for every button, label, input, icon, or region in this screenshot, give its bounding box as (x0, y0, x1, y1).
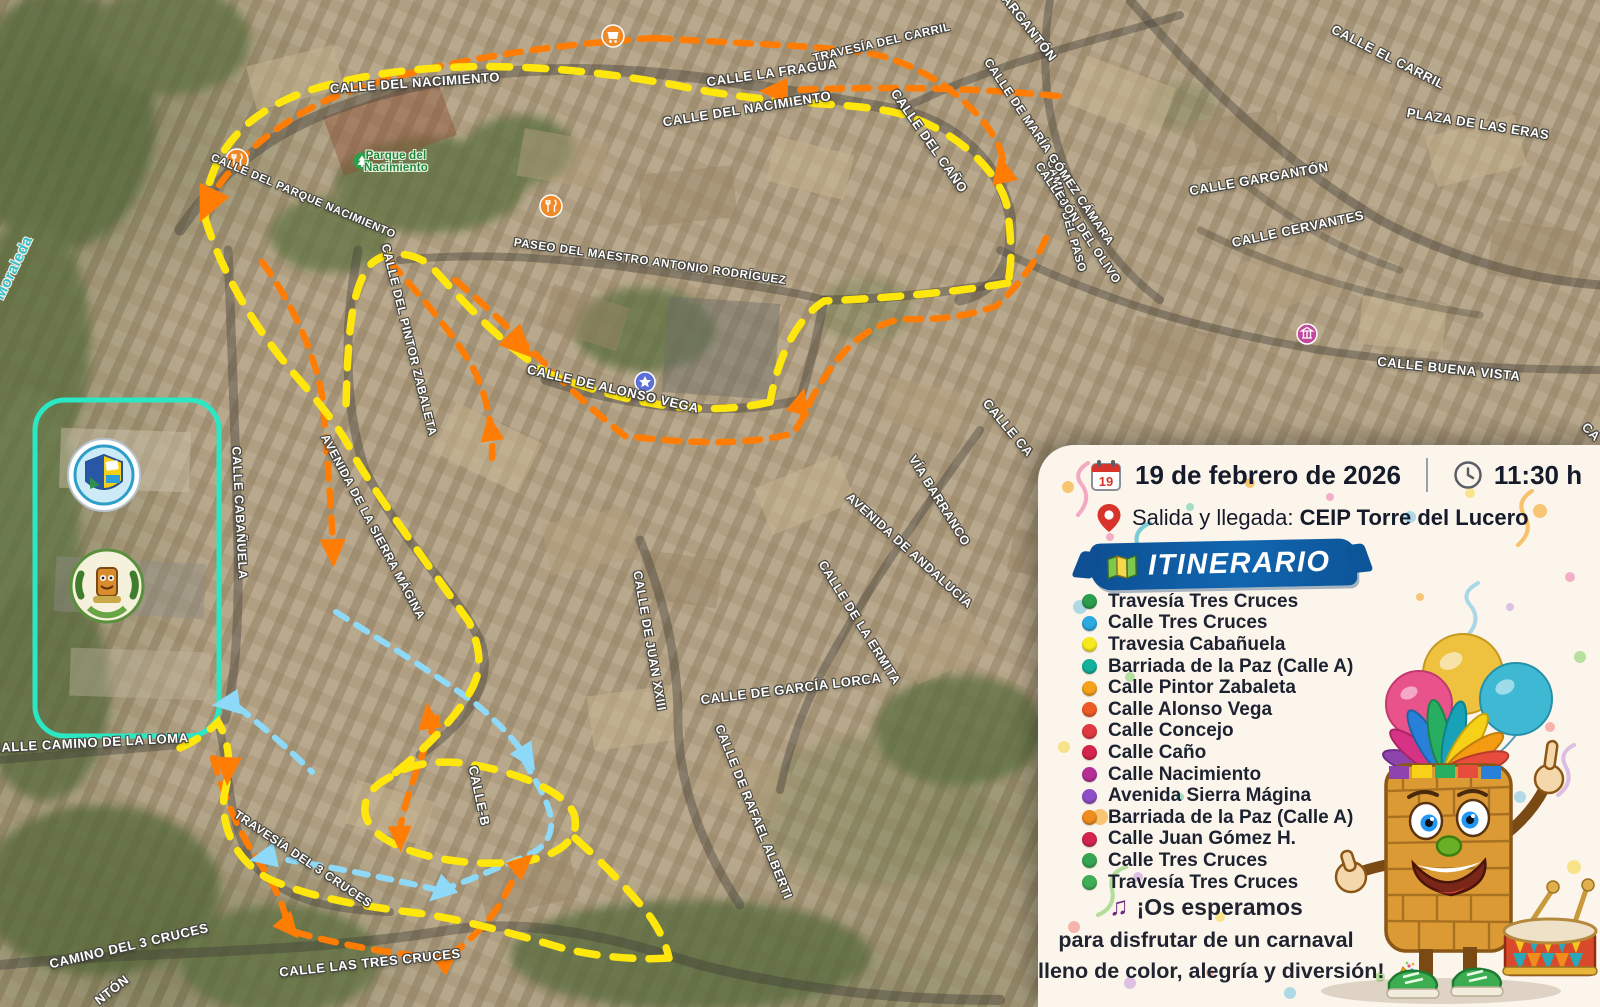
restaurant-icon (225, 148, 249, 172)
music-note-icon: ♫ (1109, 891, 1129, 921)
rim-stripes (1389, 765, 1501, 779)
star-poi-icon (634, 371, 656, 393)
route-color-dot (1082, 724, 1097, 739)
route-color-dot (1082, 789, 1097, 804)
calendar-icon: 19 (1088, 457, 1124, 493)
itinerary-item-label: Calle Caño (1108, 742, 1206, 764)
route-color-dot (1082, 853, 1097, 868)
route-color-dot (1082, 702, 1097, 717)
itinerary-item-label: Calle Tres Cruces (1108, 612, 1267, 634)
route-alt (238, 612, 551, 890)
itinerary-item-label: Calle Concejo (1108, 720, 1234, 742)
location-label: Salida y llegada: (1132, 505, 1293, 530)
itinerary-item-label: Travesia Cabañuela (1108, 634, 1285, 656)
map-icon (1106, 553, 1139, 580)
route-color-dot (1082, 875, 1097, 890)
svg-text:19: 19 (1099, 474, 1113, 489)
event-info-panel: 19 19 de febrero de 2026 11:30 h Salida … (1038, 445, 1600, 1007)
header-divider (1426, 458, 1428, 492)
location-value: CEIP Torre del Lucero (1300, 505, 1529, 530)
route-color-dot (1082, 637, 1097, 652)
route-color-dot (1082, 767, 1097, 782)
vegetation-layer (0, 0, 1218, 1007)
itinerary-item-label: Calle Nacimiento (1108, 764, 1261, 786)
route-color-dot (1082, 594, 1097, 609)
itinerary-item-label: Calle Tres Cruces (1108, 850, 1267, 872)
park-icon (353, 152, 371, 170)
route-color-dot (1082, 745, 1097, 760)
itinerary-item-label: Avenida Sierra Mágina (1108, 785, 1311, 807)
event-location: Salida y llegada: CEIP Torre del Lucero (1096, 503, 1529, 533)
monument-poi-icon (1296, 323, 1318, 345)
location-text: Salida y llegada: CEIP Torre del Lucero (1132, 505, 1529, 531)
shop-icon (601, 24, 625, 48)
drum (1503, 879, 1597, 975)
pointing-hand (1535, 740, 1563, 793)
route-color-dot (1082, 616, 1097, 631)
itinerary-item-label: Calle Pintor Zabaleta (1108, 677, 1296, 699)
itinerary-item-label: Calle Alonso Vega (1108, 699, 1272, 721)
event-time: 11:30 h (1494, 460, 1582, 491)
route-color-dot (1082, 659, 1097, 674)
event-datetime: 19 19 de febrero de 2026 11:30 h (1088, 457, 1582, 493)
route-color-dot (1082, 810, 1097, 825)
thumbs-up-hand (1336, 850, 1366, 892)
carnival-mascot-logo (69, 548, 145, 624)
route-color-dot (1082, 832, 1097, 847)
carnival-route-flyer: CALLE DEL NACIMIENTOCALLE DEL NACIMIENTO… (0, 0, 1600, 1007)
location-pin-icon (1096, 503, 1122, 533)
basket-body (1386, 765, 1511, 951)
restaurant-icon (539, 194, 563, 218)
carnival-basket-mascot (1288, 569, 1600, 1007)
school-crest-logo (66, 437, 142, 513)
clock-icon (1453, 460, 1483, 490)
itinerary-item-label: Calle Juan Gómez H. (1108, 828, 1296, 850)
itinerary-item-label: Travesía Tres Cruces (1108, 591, 1298, 613)
event-date: 19 de febrero de 2026 (1135, 460, 1401, 491)
route-color-dot (1082, 681, 1097, 696)
